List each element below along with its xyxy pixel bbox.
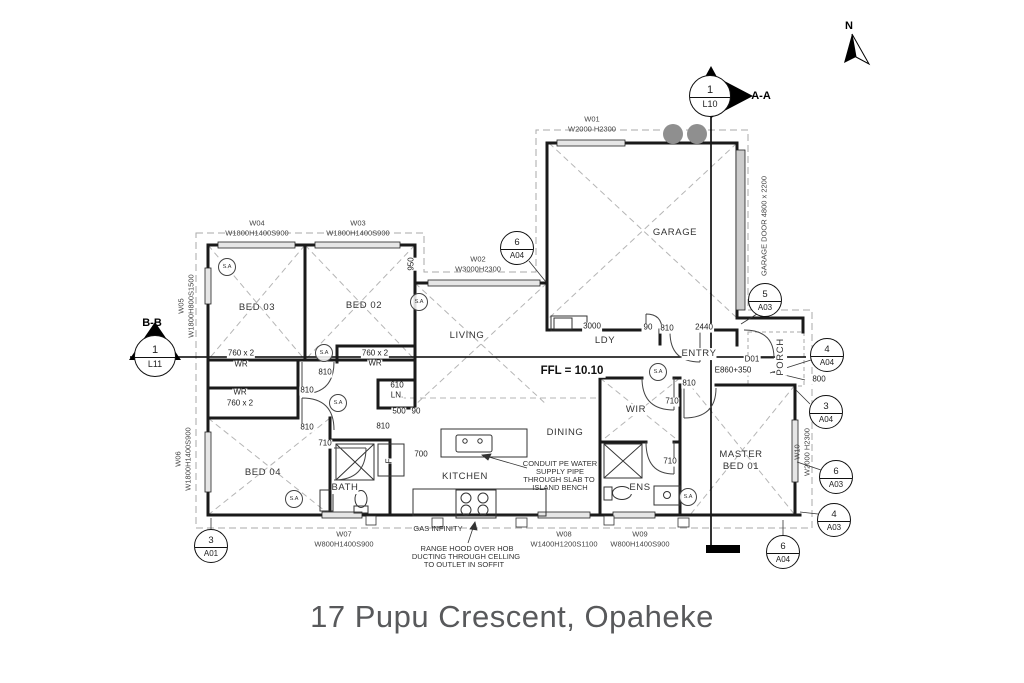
kitchen-bench bbox=[413, 489, 546, 516]
window-w08-id: W08 bbox=[556, 529, 571, 538]
ens-vanity bbox=[654, 486, 680, 505]
window-w04-spec: W1800H1400S900 bbox=[225, 228, 288, 237]
smoke-alarm-master: S.A bbox=[679, 488, 697, 506]
garage-door-label: GARAGE DOOR 4800 x 2200 bbox=[759, 176, 768, 276]
dim-2440: 2440 bbox=[694, 324, 714, 333]
window-w02-spec: W3000H2300 bbox=[455, 264, 501, 273]
dim-710-ens: 710 bbox=[662, 458, 677, 467]
window-w03-id: W03 bbox=[350, 218, 365, 227]
dim-700: 700 bbox=[413, 451, 428, 460]
smoke-alarm-hall: S.A bbox=[329, 394, 347, 412]
room-master-line1: MASTER bbox=[719, 449, 762, 461]
wr-b-label: WR bbox=[232, 389, 247, 398]
section-marker-aa: 1 L10 bbox=[689, 75, 731, 117]
section-aa-label: A-A bbox=[751, 90, 771, 104]
section-bb-sheet: L11 bbox=[148, 358, 162, 369]
wr-c-size: 760 x 2 bbox=[361, 350, 389, 359]
room-ens: ENS bbox=[629, 482, 650, 494]
ffl-level: FFL = 10.10 bbox=[539, 364, 606, 378]
room-bath: BATH bbox=[331, 482, 358, 494]
window-w01-id: W01 bbox=[584, 114, 599, 123]
room-wir: WIR bbox=[626, 404, 646, 416]
dim-3000: 3000 bbox=[582, 323, 602, 332]
window-w05-id: W05 bbox=[176, 298, 185, 313]
room-dining: DINING bbox=[547, 427, 584, 439]
smoke-alarm-bed04: S.A bbox=[285, 490, 303, 508]
dim-500: 500 bbox=[391, 408, 406, 417]
window-w06-id: W06 bbox=[173, 451, 182, 466]
smoke-alarm-entry: S.A bbox=[649, 363, 667, 381]
room-living: LIVING bbox=[450, 330, 485, 342]
ref-marker-3-a01: 3A01 bbox=[194, 529, 228, 563]
dim-610: 610 bbox=[389, 382, 404, 391]
window-w03-spec: W1800H1400S900 bbox=[326, 228, 389, 237]
wr-a-label: WR bbox=[233, 361, 248, 370]
dim-ln: LN. bbox=[390, 392, 404, 401]
ref-marker-6-a04-bottom: 6A04 bbox=[766, 535, 800, 569]
section-aa-number: 1 bbox=[690, 84, 730, 98]
window-w09-spec: W800H1400S900 bbox=[610, 539, 669, 548]
north-arrow bbox=[844, 34, 869, 64]
window-w04-id: W04 bbox=[249, 218, 264, 227]
ref-marker-3-a04: 3A04 bbox=[809, 395, 843, 429]
note-conduit-line4: ISLAND BENCH bbox=[532, 483, 587, 493]
room-ldy: LDY bbox=[595, 335, 615, 347]
note-range-hood-line3: TO OUTLET IN SOFFIT bbox=[424, 560, 504, 570]
window-w10-id: W10 bbox=[792, 444, 801, 459]
smoke-alarm-bed03: S.A bbox=[218, 258, 236, 276]
section-marker-bb: 1 L11 bbox=[134, 335, 176, 377]
ref-marker-6-a03: 6A03 bbox=[819, 460, 853, 494]
wr-a-size: 760 x 2 bbox=[227, 350, 255, 359]
room-porch: PORCH bbox=[775, 338, 787, 375]
downpipe-dots bbox=[663, 124, 707, 144]
window-w02-id: W02 bbox=[470, 254, 485, 263]
window-w10-spec: W2000 H2300 bbox=[802, 428, 811, 476]
dim-810-hall-a: 810 bbox=[299, 387, 314, 396]
room-garage: GARAGE bbox=[653, 227, 697, 239]
island-bench bbox=[441, 429, 527, 457]
room-kitchen: KITCHEN bbox=[442, 471, 488, 483]
garage-door-panel bbox=[736, 150, 745, 310]
dim-710-wir: 710 bbox=[664, 398, 679, 407]
note-gas-infinity: GAS INFINITY bbox=[413, 524, 462, 534]
dim-810-hall-top: 810 bbox=[317, 369, 332, 378]
dim-90-ln: 90 bbox=[411, 408, 422, 417]
window-w07-id: W07 bbox=[336, 529, 351, 538]
section-bb-number: 1 bbox=[135, 344, 175, 358]
smoke-alarm-living: S.A bbox=[410, 293, 428, 311]
door-swings bbox=[302, 314, 774, 480]
wr-c-label: WR bbox=[367, 360, 382, 369]
window-w01-spec: W2000 H2300 bbox=[568, 124, 616, 133]
smoke-alarm-hall-top: S.A bbox=[315, 344, 333, 362]
dim-810-master: 810 bbox=[681, 380, 696, 389]
ens-toilet-tank bbox=[604, 487, 612, 500]
window-w05-spec: W1800H800S1500 bbox=[186, 274, 195, 337]
wr-b-size: 760 x 2 bbox=[226, 400, 254, 409]
dim-810-entry: 810 bbox=[659, 325, 674, 334]
ref-marker-4-a03: 4A03 bbox=[817, 503, 851, 537]
dim-710-bath: 710 bbox=[317, 440, 332, 449]
dim-810-hall-b: 810 bbox=[299, 424, 314, 433]
north-label: N bbox=[845, 20, 853, 32]
room-bed03: BED 03 bbox=[239, 302, 275, 314]
dim-fridge-f: F bbox=[386, 459, 395, 464]
page-title: 17 Pupu Crescent, Opaheke bbox=[310, 599, 714, 635]
window-w08-spec: W1400H1200S1100 bbox=[531, 539, 598, 548]
island-sink bbox=[456, 435, 492, 452]
room-entry: ENTRY bbox=[681, 348, 716, 360]
ref-marker-5-a03: 5A03 bbox=[748, 283, 782, 317]
room-bed02: BED 02 bbox=[346, 300, 382, 312]
room-master-line2: BED 01 bbox=[723, 461, 759, 473]
section-bb-label: B-B bbox=[142, 317, 162, 331]
dim-950: 950 bbox=[408, 257, 417, 270]
room-bed04: BED 04 bbox=[245, 467, 281, 479]
ref-marker-4-a04: 4A04 bbox=[810, 338, 844, 372]
dim-800: 800 bbox=[811, 376, 826, 385]
dim-810-bed02: 810 bbox=[375, 423, 390, 432]
ref-marker-6-a04: 6A04 bbox=[500, 231, 534, 265]
section-aa-sheet: L10 bbox=[702, 98, 717, 109]
window-w07-spec: W800H1400S900 bbox=[314, 539, 373, 548]
dim-90-entry: 90 bbox=[643, 324, 654, 333]
floor-plan-sheet: 1 L10 A-A 1 L11 B-B 6A04 5A03 4A04 3A04 … bbox=[0, 0, 1024, 683]
door-d01-label: D01 bbox=[744, 356, 761, 365]
door-e860-label: E860+350 bbox=[714, 367, 753, 376]
window-w09-id: W09 bbox=[632, 529, 647, 538]
window-w06-spec: W1800H1400S900 bbox=[183, 427, 192, 490]
